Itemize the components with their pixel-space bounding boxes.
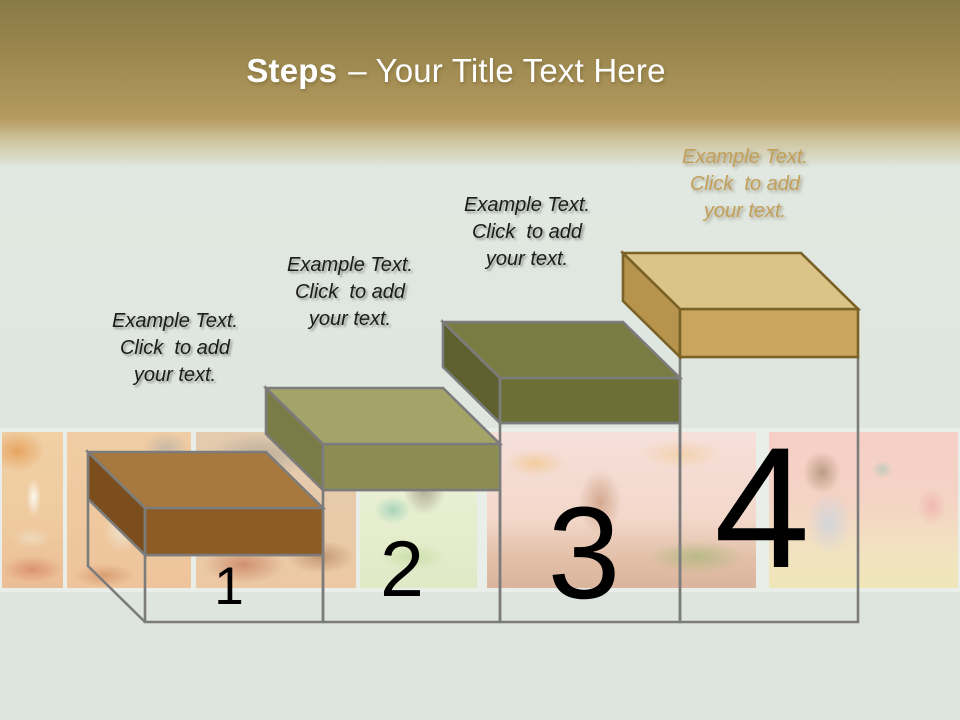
step-1-label-line-2: Click to add [60, 335, 290, 362]
step-number-1: 1 [214, 560, 243, 613]
step-1-front-face [145, 508, 323, 555]
slide: Steps– Your Title Text Here [0, 0, 960, 720]
step-3-label-line-1: Example Text. [412, 192, 642, 219]
step-number-4: 4 [714, 422, 810, 594]
step-3-label: Example Text. Click to add your text. [412, 192, 642, 273]
step-4-label-line-1: Example Text. [630, 144, 860, 171]
step-3-label-line-2: Click to add [412, 219, 642, 246]
step-3-front-face [500, 378, 680, 423]
step-2-label-line-2: Click to add [235, 279, 465, 306]
step-3-label-line-3: your text. [412, 246, 642, 273]
step-2-front-face [323, 444, 500, 490]
step-4-label-line-3: your text. [630, 198, 860, 225]
step-4-front-face [680, 309, 858, 357]
step-4-label: Example Text. Click to add your text. [630, 144, 860, 225]
step-1-label-line-3: your text. [60, 362, 290, 389]
step-number-3: 3 [548, 487, 621, 618]
step-number-2: 2 [380, 529, 424, 608]
step-4-label-line-2: Click to add [630, 171, 860, 198]
step-2-label-line-3: your text. [235, 306, 465, 333]
